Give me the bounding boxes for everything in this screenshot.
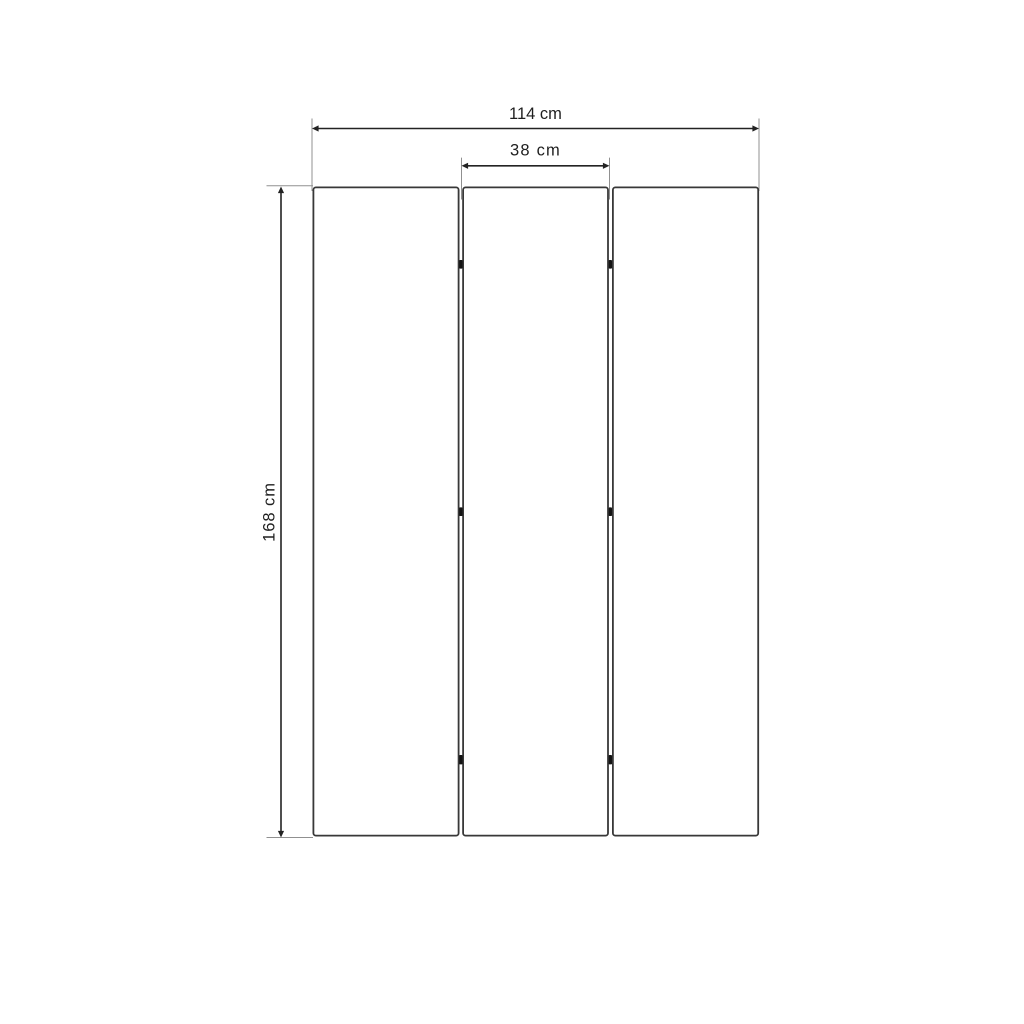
svg-text:114 cm: 114 cm bbox=[509, 105, 562, 123]
svg-text:168 cm: 168 cm bbox=[261, 482, 279, 542]
svg-text:38 cm: 38 cm bbox=[510, 141, 561, 159]
